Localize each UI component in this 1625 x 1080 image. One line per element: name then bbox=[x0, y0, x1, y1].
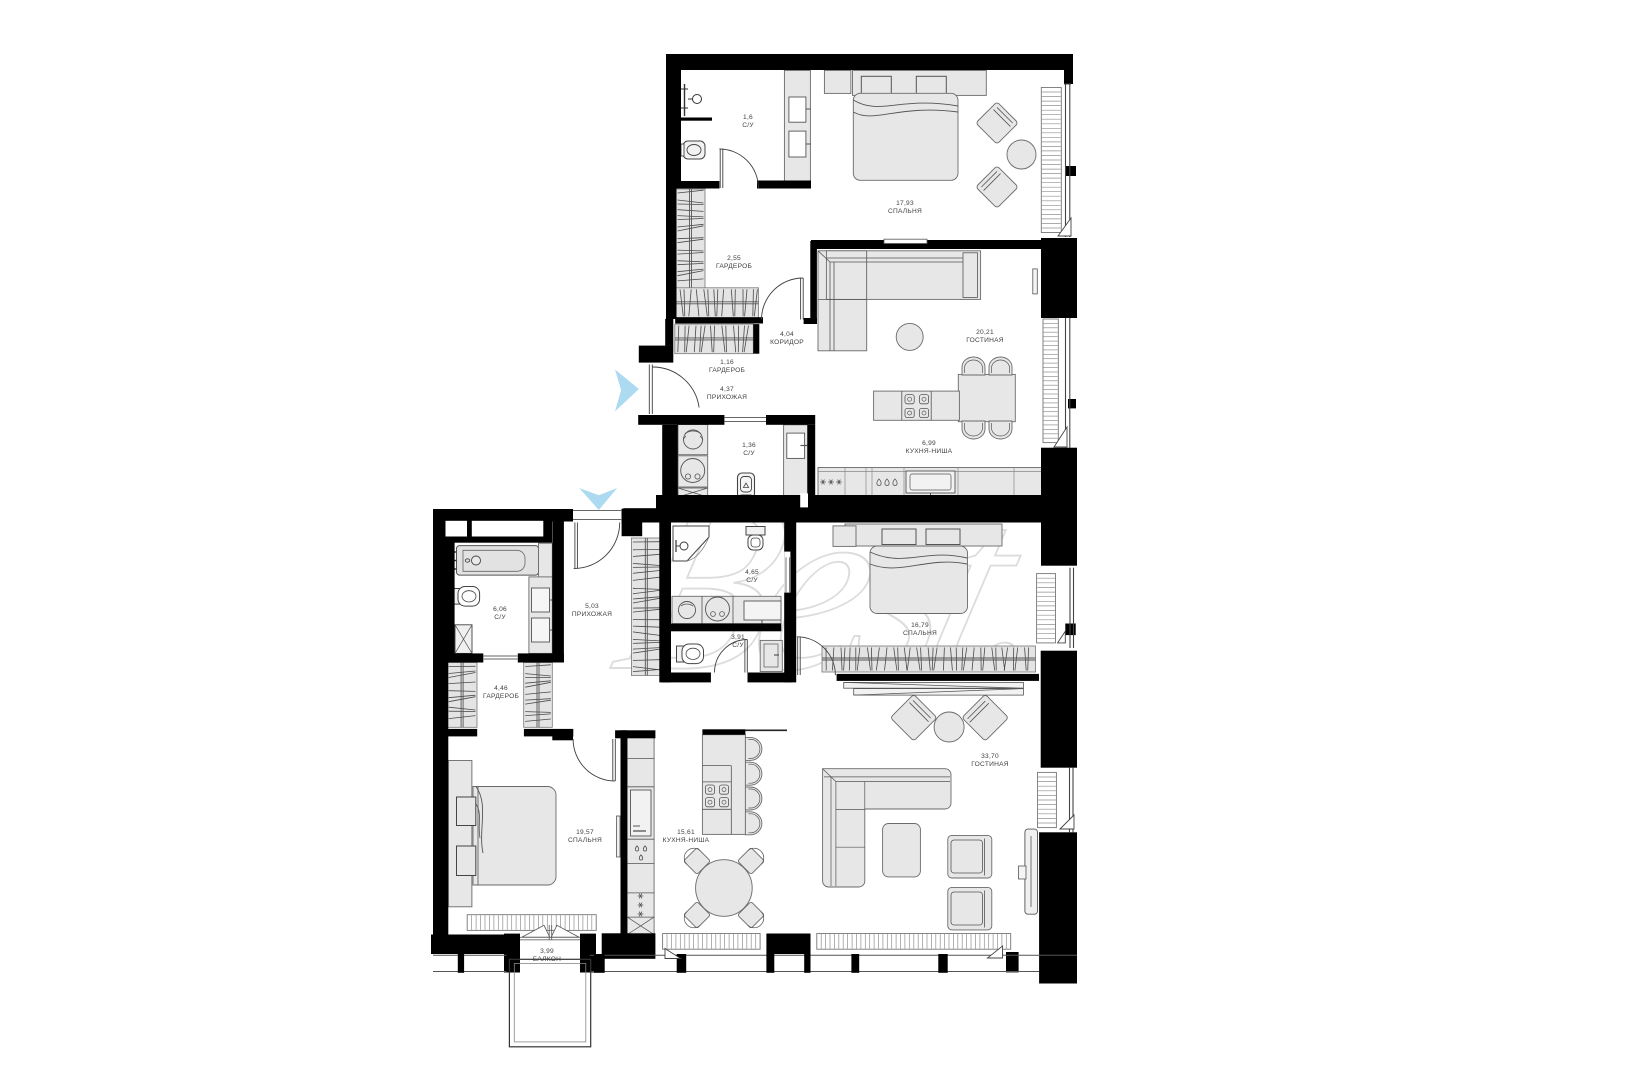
svg-text:С/У: С/У bbox=[746, 577, 758, 584]
svg-text:СПАЛЬНЯ: СПАЛЬНЯ bbox=[888, 208, 922, 215]
svg-text:С/У: С/У bbox=[742, 122, 754, 129]
svg-text:СПАЛЬНЯ: СПАЛЬНЯ bbox=[568, 837, 602, 844]
svg-text:4,65: 4,65 bbox=[745, 569, 759, 576]
svg-text:6,06: 6,06 bbox=[493, 606, 507, 613]
svg-text:КОРИДОР: КОРИДОР bbox=[770, 339, 804, 346]
svg-text:С/У: С/У bbox=[494, 614, 506, 621]
svg-text:4,04: 4,04 bbox=[780, 331, 794, 338]
svg-text:КУХНЯ-НИША: КУХНЯ-НИША bbox=[663, 837, 710, 844]
svg-text:4,37: 4,37 bbox=[720, 386, 734, 393]
svg-text:БАЛКОН: БАЛКОН bbox=[533, 956, 561, 963]
svg-text:15,61: 15,61 bbox=[677, 829, 695, 836]
svg-text:ГАРДЕРОБ: ГАРДЕРОБ bbox=[483, 693, 519, 700]
svg-text:16,79: 16,79 bbox=[911, 622, 929, 629]
svg-text:ГОСТИНАЯ: ГОСТИНАЯ bbox=[966, 337, 1004, 344]
svg-text:1,6: 1,6 bbox=[743, 114, 753, 121]
svg-text:20,21: 20,21 bbox=[976, 329, 994, 336]
svg-text:3,91: 3,91 bbox=[731, 634, 745, 641]
svg-text:5,03: 5,03 bbox=[585, 603, 599, 610]
svg-text:С/У: С/У bbox=[732, 642, 744, 649]
svg-text:КУХНЯ-НИША: КУХНЯ-НИША bbox=[906, 448, 953, 455]
svg-text:ПРИХОЖАЯ: ПРИХОЖАЯ bbox=[572, 611, 612, 618]
svg-text:17,93: 17,93 bbox=[896, 200, 914, 207]
svg-text:ГАРДЕРОБ: ГАРДЕРОБ bbox=[716, 263, 752, 270]
svg-text:1,16: 1,16 bbox=[720, 359, 734, 366]
svg-text:СПАЛЬНЯ: СПАЛЬНЯ bbox=[903, 630, 937, 637]
svg-text:4,46: 4,46 bbox=[494, 685, 508, 692]
svg-text:С/У: С/У bbox=[743, 450, 755, 457]
svg-text:ГОСТИНАЯ: ГОСТИНАЯ bbox=[971, 761, 1009, 768]
svg-text:33,70: 33,70 bbox=[981, 753, 999, 760]
svg-text:ПРИХОЖАЯ: ПРИХОЖАЯ bbox=[707, 394, 747, 401]
svg-text:6,99: 6,99 bbox=[922, 440, 936, 447]
svg-text:ГАРДЕРОБ: ГАРДЕРОБ bbox=[709, 367, 745, 374]
svg-text:19,57: 19,57 bbox=[576, 829, 594, 836]
svg-text:3,99: 3,99 bbox=[540, 948, 554, 955]
svg-text:1,36: 1,36 bbox=[742, 442, 756, 449]
svg-text:2,55: 2,55 bbox=[727, 255, 741, 262]
